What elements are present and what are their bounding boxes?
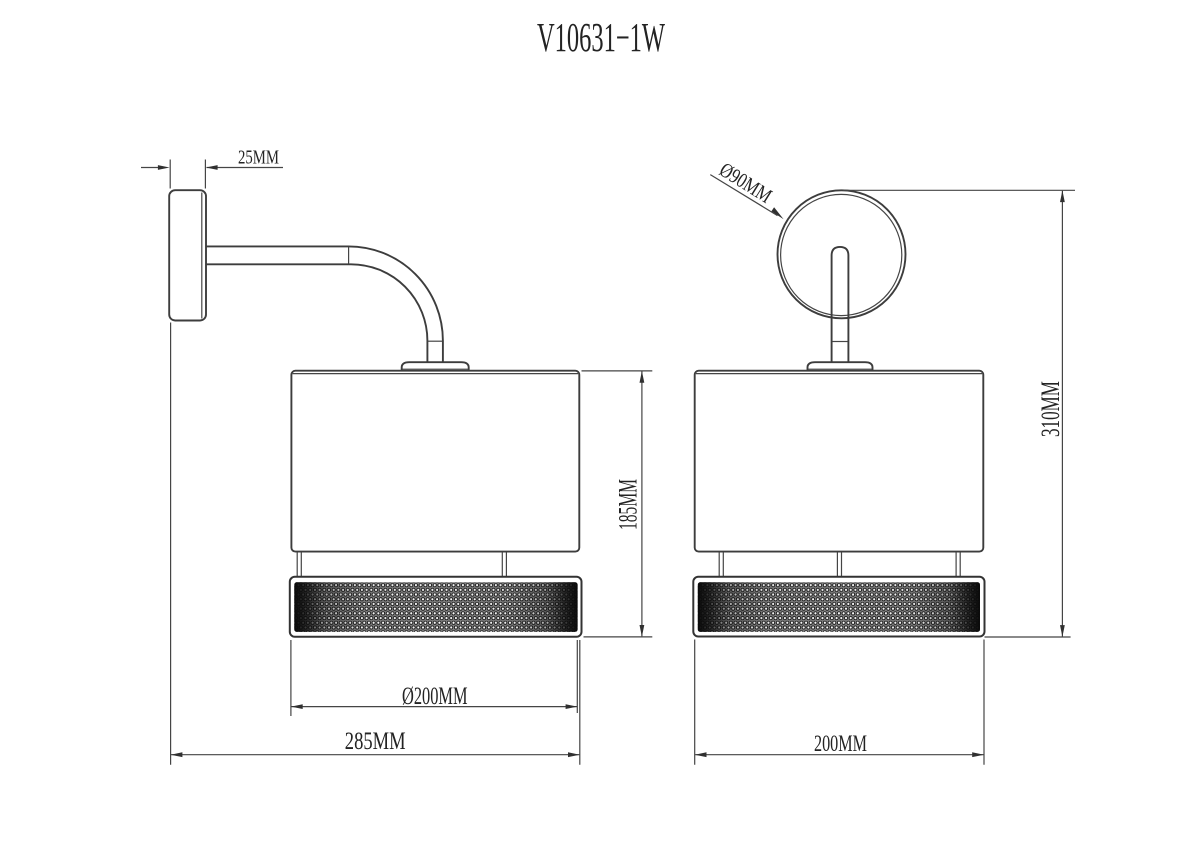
svg-text:200MM: 200MM bbox=[814, 731, 867, 756]
svg-text:285MM: 285MM bbox=[345, 726, 406, 755]
svg-text:Ø200MM: Ø200MM bbox=[402, 681, 468, 710]
svg-text:V10631−1W: V10631−1W bbox=[537, 14, 665, 60]
svg-text:185MM: 185MM bbox=[614, 479, 643, 530]
svg-text:310MM: 310MM bbox=[1036, 381, 1065, 437]
svg-text:25MM: 25MM bbox=[238, 147, 279, 169]
